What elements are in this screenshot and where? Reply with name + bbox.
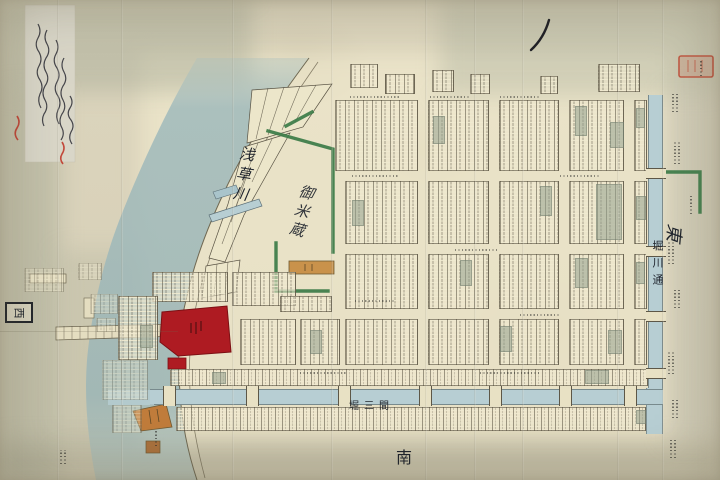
- map-block: [598, 64, 640, 92]
- map-block: [540, 76, 558, 94]
- shaded-lot: [575, 258, 588, 288]
- margin-text-column: [60, 450, 62, 464]
- margin-text-column: [668, 352, 670, 374]
- map-block: [350, 64, 378, 88]
- margin-text-column: [668, 242, 670, 264]
- margin-text-column: [64, 450, 66, 464]
- map-block: [240, 319, 296, 365]
- canal-bridge: [559, 386, 572, 406]
- margin-text-column: [690, 196, 692, 214]
- map-block: [470, 74, 490, 94]
- street-text-mark: [430, 96, 470, 98]
- shaded-lot: [433, 116, 445, 144]
- street-text-mark: [300, 372, 346, 374]
- margin-text-column: [676, 92, 678, 112]
- street-text-mark: [355, 300, 395, 302]
- bottom-canal-label: 堀三間: [349, 397, 394, 412]
- shaded-lot: [610, 122, 624, 148]
- margin-text-column: [674, 288, 676, 308]
- map-block: [432, 70, 454, 92]
- canal-bridge: [646, 168, 666, 179]
- temple-block: [160, 306, 231, 369]
- historical-map-scan: 浅草川 御米蔵 堀川通 東 西 南 堀三間: [0, 0, 720, 480]
- small-brown-block: [146, 441, 160, 453]
- map-block: [112, 405, 142, 433]
- shaded-lot: [140, 325, 153, 348]
- canal-bridge: [646, 368, 666, 379]
- map-block: [90, 294, 118, 314]
- margin-text-column: [678, 140, 680, 164]
- margin-text-column: [670, 440, 672, 458]
- street-text-mark: [352, 175, 398, 177]
- margin-text-column: [155, 430, 157, 446]
- map-block: [428, 181, 489, 244]
- collection-seal: [679, 56, 713, 77]
- map-block: [428, 254, 489, 309]
- margin-text-column: [674, 440, 676, 458]
- map-block: [335, 100, 418, 171]
- shaded-lot: [636, 410, 646, 424]
- canal-bridge: [163, 386, 176, 406]
- map-block: [176, 407, 646, 431]
- direction-west-label: 西: [5, 302, 33, 323]
- margin-text-column: [672, 352, 674, 374]
- map-block: [152, 272, 228, 302]
- map-block: [170, 369, 648, 386]
- street-text-mark: [480, 372, 540, 374]
- map-block: [499, 254, 559, 309]
- direction-south-label: 南: [396, 444, 412, 468]
- south-canal: [150, 389, 663, 405]
- canal-bridge: [246, 386, 259, 406]
- shaded-lot: [212, 372, 226, 384]
- map-block: [385, 74, 415, 94]
- shaded-lot: [636, 108, 645, 128]
- margin-text-column: [678, 288, 680, 308]
- map-block: [345, 319, 418, 365]
- map-block: [428, 319, 489, 365]
- margin-text-column: [674, 140, 676, 164]
- margin-text-column: [676, 398, 678, 418]
- shaded-lot: [636, 262, 645, 284]
- map-block: [78, 263, 102, 280]
- map-block: [102, 360, 148, 400]
- shaded-lot: [540, 186, 552, 216]
- shaded-lot: [608, 330, 622, 354]
- street-text-mark: [560, 175, 600, 177]
- shaded-lot: [596, 184, 622, 240]
- street-text-mark: [520, 314, 560, 316]
- shaded-lot: [585, 370, 609, 384]
- direction-east-label: 東: [661, 223, 688, 243]
- margin-text-column: [672, 398, 674, 418]
- horizontal-fold-crease: [0, 331, 178, 332]
- map-block: [24, 268, 64, 292]
- shaded-lot: [460, 260, 472, 286]
- canal-bridge: [419, 386, 432, 406]
- map-block: [634, 319, 647, 365]
- margin-text-column: [700, 60, 702, 76]
- brush-stroke-mark: [531, 20, 549, 50]
- shaded-lot: [575, 106, 587, 136]
- map-block: [280, 296, 332, 312]
- margin-text-column: [672, 92, 674, 112]
- street-text-mark: [350, 96, 400, 98]
- map-block: [499, 100, 559, 171]
- street-text-mark: [500, 96, 540, 98]
- shaded-lot: [310, 330, 322, 354]
- canal-bridge: [489, 386, 502, 406]
- margin-text-column: [672, 242, 674, 264]
- shaded-lot: [352, 200, 364, 226]
- canal-bridge: [624, 386, 637, 406]
- canal-street-label: 堀川通: [649, 240, 665, 291]
- street-text-mark: [455, 249, 499, 251]
- canal-bridge: [646, 311, 666, 322]
- map-block: [96, 318, 116, 332]
- shaded-lot: [636, 196, 646, 220]
- annotation-slip: [15, 5, 75, 164]
- shaded-lot: [500, 326, 512, 352]
